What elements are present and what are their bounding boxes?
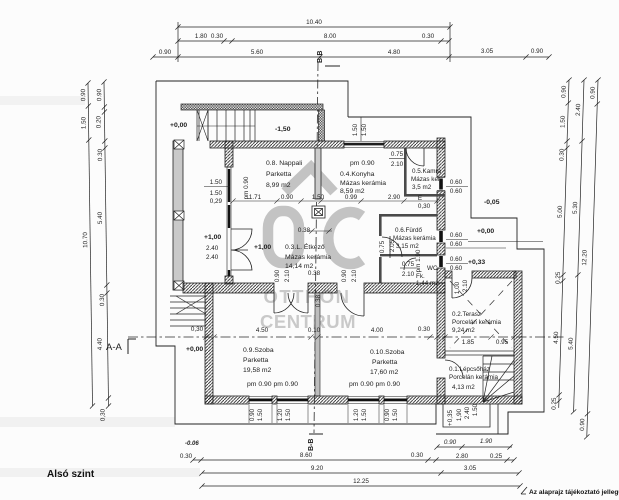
svg-text:0.4.Konyha: 0.4.Konyha — [340, 171, 375, 178]
svg-text:E: E — [418, 195, 422, 202]
svg-text:2.90: 2.90 — [388, 194, 401, 201]
svg-text:1.50: 1.50 — [361, 408, 368, 421]
svg-text:0.30: 0.30 — [422, 33, 435, 40]
svg-text:0.90: 0.90 — [589, 86, 596, 99]
svg-text:0.60: 0.60 — [450, 232, 463, 239]
svg-text:1.90: 1.90 — [480, 438, 493, 445]
svg-text:0.25: 0.25 — [551, 397, 558, 410]
svg-text:0.75: 0.75 — [379, 240, 386, 253]
svg-text:0,30: 0,30 — [191, 326, 204, 333]
svg-text:0.60: 0.60 — [450, 188, 463, 195]
svg-text:1.50: 1.50 — [392, 408, 399, 421]
svg-text:2.40: 2.40 — [206, 254, 219, 261]
svg-text:Mázas kerámia: Mázas kerámia — [340, 180, 386, 187]
svg-text:3.05: 3.05 — [464, 465, 477, 472]
svg-text:1.20: 1.20 — [277, 408, 284, 421]
svg-text:9.20: 9.20 — [311, 465, 324, 472]
svg-text:+1,00: +1,00 — [254, 244, 271, 251]
svg-text:5.40: 5.40 — [97, 211, 104, 224]
svg-text:14,14 m2: 14,14 m2 — [285, 263, 314, 270]
svg-text:8.00: 8.00 — [324, 33, 337, 40]
svg-text:pm 1.90: pm 1.90 — [415, 249, 422, 272]
svg-text:1,44 m2: 1,44 m2 — [416, 280, 439, 287]
svg-text:B-B: B-B — [308, 439, 315, 451]
svg-text:Porcelán kerámia: Porcelán kerámia — [449, 374, 498, 381]
svg-text:pm 0.90: pm 0.90 — [243, 176, 250, 199]
svg-text:Az alaprajz tájékoztató jelleg: Az alaprajz tájékoztató jellegű! — [529, 489, 619, 496]
svg-text:0.9.Szoba: 0.9.Szoba — [243, 347, 274, 354]
svg-text:0.95: 0.95 — [496, 339, 509, 346]
svg-text:0.90: 0.90 — [341, 269, 348, 282]
svg-text:1.50: 1.50 — [559, 115, 566, 128]
svg-text:0.6.Fürdő: 0.6.Fürdő — [395, 227, 422, 234]
svg-text:10.70: 10.70 — [82, 232, 89, 248]
svg-text:1.50: 1.50 — [352, 123, 359, 136]
svg-text:0.38: 0.38 — [308, 270, 321, 277]
svg-text:A-A: A-A — [106, 342, 123, 353]
svg-text:pm 0.90 pm 0.90: pm 0.90 pm 0.90 — [247, 381, 298, 388]
svg-text:0.90: 0.90 — [274, 269, 281, 282]
svg-text:1.50: 1.50 — [210, 179, 223, 186]
svg-text:0.30: 0.30 — [411, 452, 424, 459]
svg-text:B-B: B-B — [317, 51, 324, 63]
svg-text:0.75: 0.75 — [402, 261, 415, 268]
svg-text:Parketta: Parketta — [372, 359, 398, 366]
svg-text:1.50: 1.50 — [80, 116, 87, 129]
svg-text:0.30: 0.30 — [558, 148, 565, 161]
svg-text:0.90: 0.90 — [80, 88, 87, 101]
svg-text:8,99 m2: 8,99 m2 — [266, 182, 291, 189]
svg-text:5.00: 5.00 — [557, 205, 564, 218]
svg-text:0.90: 0.90 — [384, 408, 391, 421]
svg-text:0.25: 0.25 — [555, 271, 562, 284]
svg-text:+0,33: +0,33 — [468, 259, 485, 266]
svg-text:0.90: 0.90 — [96, 88, 103, 101]
svg-text:0.38: 0.38 — [298, 227, 311, 234]
svg-text:4.80: 4.80 — [388, 49, 401, 56]
svg-text:WC: WC — [427, 265, 438, 272]
svg-text:Parketta: Parketta — [266, 171, 292, 178]
svg-text:Fk.: Fk. — [416, 273, 425, 280]
svg-text:0.20: 0.20 — [95, 115, 102, 128]
svg-text:1.71: 1.71 — [249, 194, 262, 201]
svg-text:0.90: 0.90 — [560, 85, 567, 98]
svg-text:5.60: 5.60 — [251, 49, 264, 56]
svg-text:1.80: 1.80 — [195, 33, 208, 40]
svg-text:0.99: 0.99 — [345, 194, 358, 201]
svg-text:1.20: 1.20 — [353, 408, 360, 421]
svg-text:1,90: 1,90 — [456, 408, 463, 421]
svg-text:0.75: 0.75 — [391, 151, 404, 158]
svg-text:3,15 m2: 3,15 m2 — [396, 243, 419, 250]
svg-text:0.1.Lépcsőház: 0.1.Lépcsőház — [449, 366, 490, 373]
svg-text:Mázas kerámia: Mázas kerámia — [285, 254, 331, 261]
svg-text:-0,05: -0,05 — [484, 199, 500, 206]
svg-text:0.60: 0.60 — [450, 256, 463, 263]
svg-text:1.50: 1.50 — [472, 403, 479, 416]
svg-text:0.38: 0.38 — [315, 294, 322, 307]
svg-text:12.25: 12.25 — [353, 478, 369, 485]
svg-text:2.80: 2.80 — [456, 453, 469, 460]
svg-text:9,24 m2: 9,24 m2 — [452, 327, 475, 334]
svg-text:12.20: 12.20 — [581, 249, 589, 265]
svg-text:0.90: 0.90 — [159, 49, 172, 56]
svg-text:Parketta: Parketta — [243, 357, 269, 364]
svg-text:0.2.Terasz: 0.2.Terasz — [452, 311, 481, 318]
svg-text:2.10: 2.10 — [462, 279, 469, 292]
svg-text:0,30: 0,30 — [100, 408, 107, 421]
svg-text:4.50: 4.50 — [256, 327, 269, 334]
svg-text:0.30: 0.30 — [97, 148, 104, 161]
svg-text:+0,00: +0,00 — [477, 228, 494, 235]
svg-text:2.10: 2.10 — [351, 269, 358, 282]
svg-text:19,58 m2: 19,58 m2 — [243, 367, 272, 374]
svg-text:0,30: 0,30 — [418, 203, 431, 210]
svg-text:pm 0.90 pm 0.90: pm 0.90 pm 0.90 — [349, 381, 400, 388]
svg-text:2.40: 2.40 — [464, 406, 471, 419]
svg-text:-0.06: -0.06 — [185, 441, 199, 447]
svg-text:0.3.L. Étkező: 0.3.L. Étkező — [285, 242, 325, 251]
svg-text:2.10: 2.10 — [402, 271, 415, 278]
svg-text:8.60: 8.60 — [300, 452, 313, 459]
svg-text:4.00: 4.00 — [371, 327, 384, 334]
svg-text:OTTHON: OTTHON — [263, 286, 350, 307]
svg-text:0.10.Szoba: 0.10.Szoba — [370, 349, 405, 356]
svg-text:5.30: 5.30 — [572, 201, 579, 214]
svg-text:1.50: 1.50 — [312, 194, 325, 201]
svg-text:-1,50: -1,50 — [275, 126, 291, 133]
svg-text:10.40: 10.40 — [306, 19, 322, 26]
svg-text:+0,35: +0,35 — [447, 410, 454, 426]
svg-text:Porcelán kerámia: Porcelán kerámia — [452, 319, 501, 326]
svg-text:0.90: 0.90 — [531, 48, 544, 55]
svg-text:2.10: 2.10 — [284, 269, 291, 282]
svg-text:0.8. Nappali: 0.8. Nappali — [266, 160, 303, 167]
svg-text:Mázas ker: Mázas ker — [411, 176, 440, 183]
svg-text:4.40: 4.40 — [97, 337, 104, 350]
svg-text:+0,00: +0,00 — [186, 346, 203, 353]
svg-text:0.90: 0.90 — [579, 418, 586, 431]
svg-text:0.60: 0.60 — [450, 265, 463, 272]
svg-text:5.40: 5.40 — [568, 337, 575, 350]
svg-text:+1,00: +1,00 — [204, 234, 221, 241]
svg-text:2.40: 2.40 — [206, 245, 219, 252]
svg-text:+0,00: +0,00 — [170, 122, 187, 129]
svg-text:1.00: 1.00 — [454, 281, 461, 294]
svg-text:4,13 m2: 4,13 m2 — [452, 384, 475, 391]
svg-text:0.60: 0.60 — [450, 241, 463, 248]
svg-text:0.10: 0.10 — [308, 327, 321, 334]
svg-text:Mázas kerámia: Mázas kerámia — [393, 235, 436, 242]
svg-text:1.85: 1.85 — [462, 339, 475, 346]
svg-text:2.10: 2.10 — [391, 161, 404, 168]
svg-text:0,29: 0,29 — [210, 198, 223, 205]
svg-text:4.50: 4.50 — [553, 331, 560, 344]
svg-text:17,60 m2: 17,60 m2 — [370, 369, 399, 376]
svg-text:0.30: 0.30 — [180, 453, 193, 460]
svg-text:8,59 m2: 8,59 m2 — [340, 188, 365, 195]
svg-text:2.05: 2.05 — [389, 239, 396, 252]
svg-text:0.25: 0.25 — [490, 453, 503, 460]
svg-text:Alsó szint: Alsó szint — [47, 469, 95, 480]
svg-text:0.5.Kamra: 0.5.Kamra — [412, 168, 442, 175]
svg-text:3.05: 3.05 — [481, 48, 494, 55]
svg-text:2.40: 2.40 — [575, 103, 582, 116]
svg-text:0.90: 0.90 — [444, 439, 457, 446]
svg-text:0.60: 0.60 — [450, 179, 463, 186]
svg-text:0.30: 0.30 — [418, 326, 431, 333]
svg-text:0.30: 0.30 — [211, 33, 224, 40]
svg-text:0.90: 0.90 — [281, 194, 294, 201]
svg-text:pm 0.90: pm 0.90 — [350, 160, 375, 167]
svg-text:0.30: 0.30 — [99, 293, 106, 306]
svg-text:1.50: 1.50 — [361, 123, 368, 136]
svg-text:1.50: 1.50 — [257, 408, 264, 421]
svg-text:1.50: 1.50 — [285, 408, 292, 421]
svg-text:1.50: 1.50 — [210, 190, 223, 197]
svg-text:0.90: 0.90 — [249, 408, 256, 421]
svg-text:3,5 m2: 3,5 m2 — [412, 184, 432, 191]
